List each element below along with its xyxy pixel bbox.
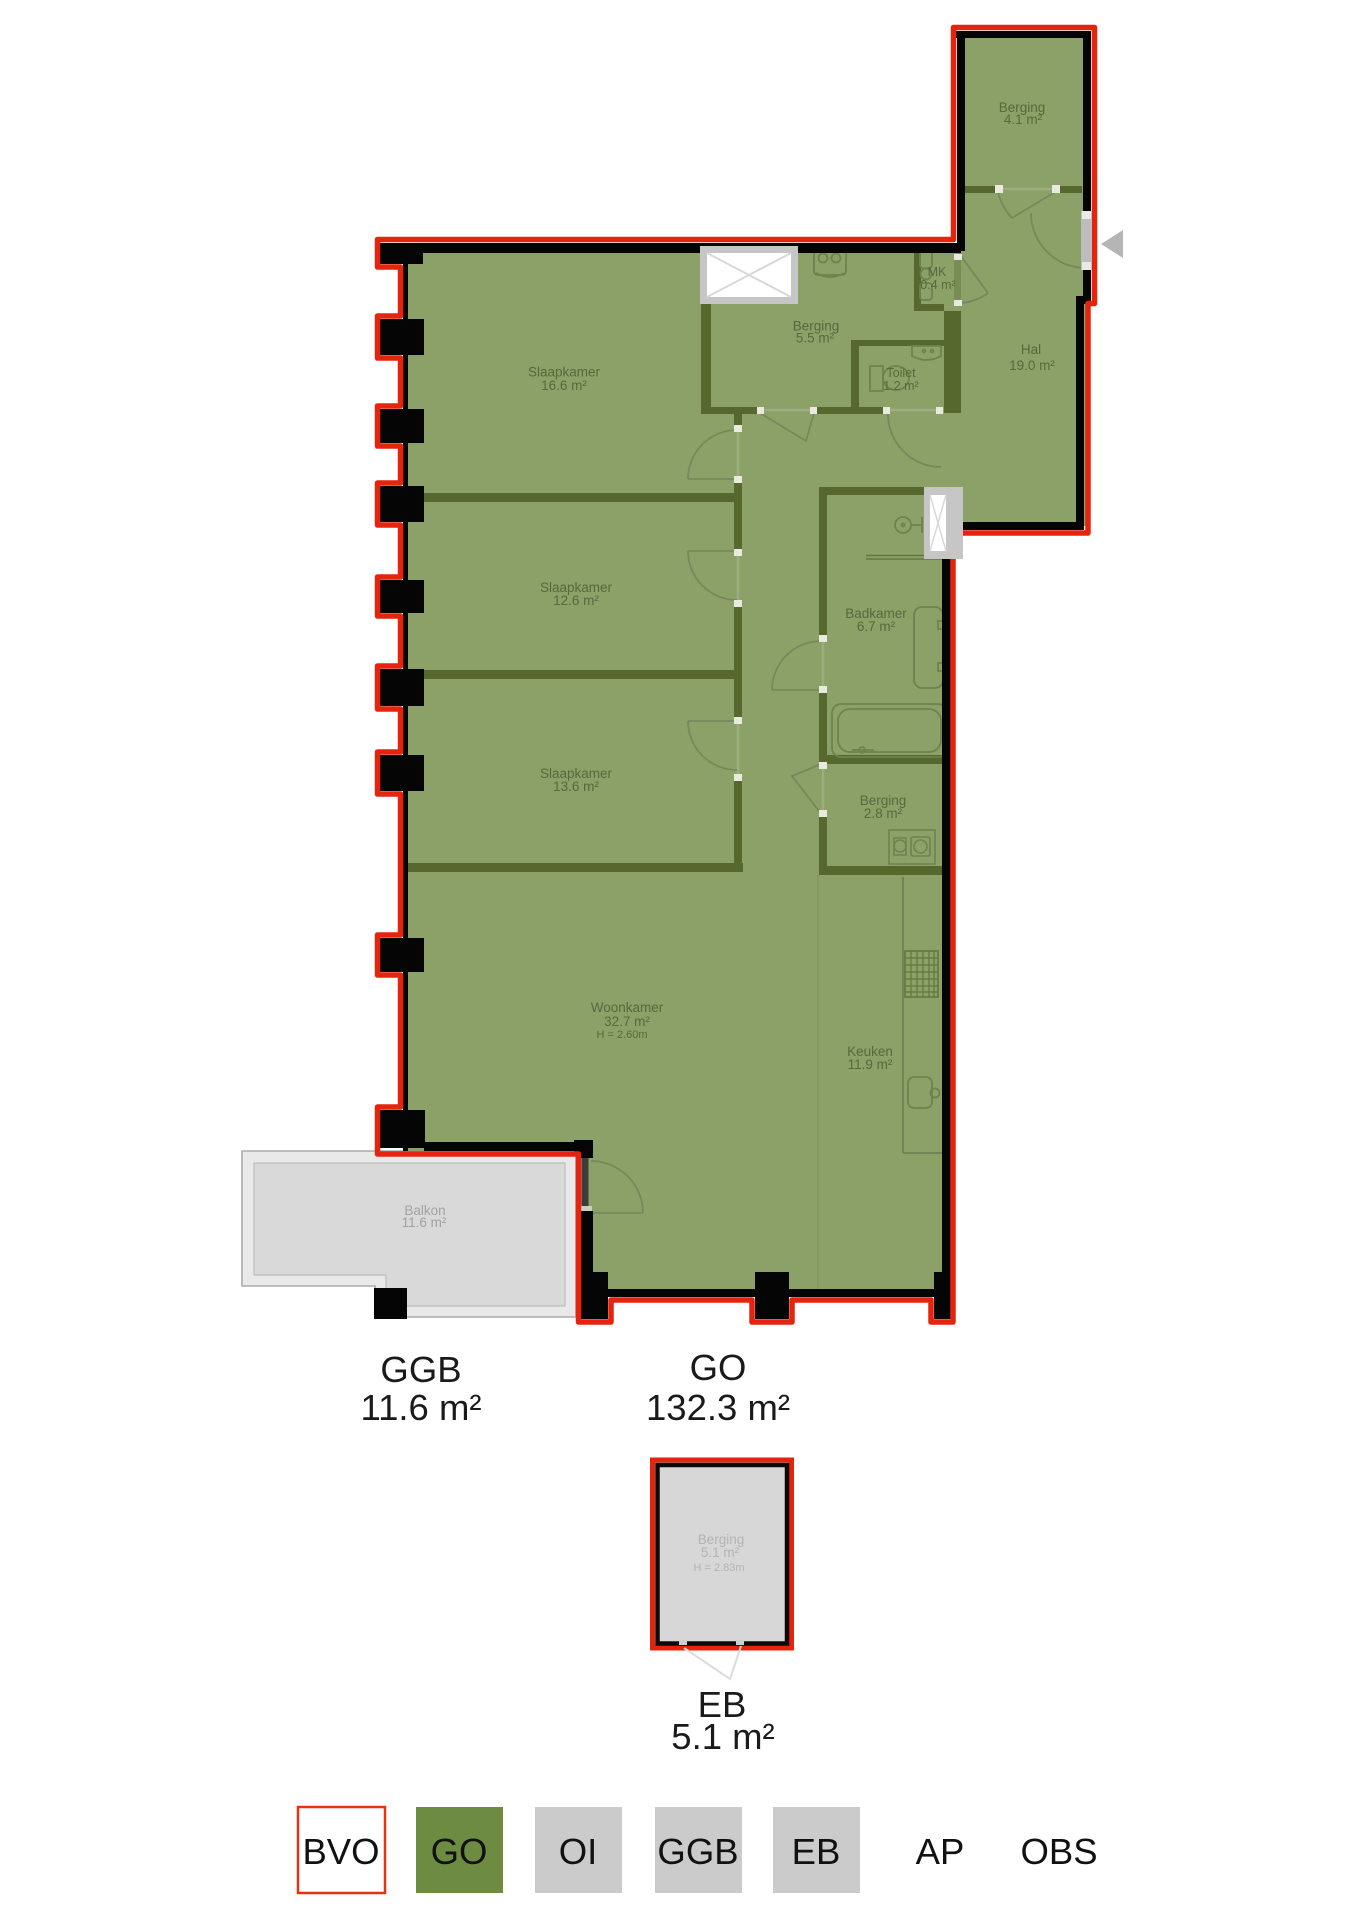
svg-text:EB: EB	[792, 1831, 841, 1872]
svg-text:GO: GO	[431, 1831, 488, 1872]
svg-text:11.9 m²: 11.9 m²	[848, 1057, 893, 1072]
svg-text:GO: GO	[690, 1347, 747, 1388]
svg-text:1.2 m²: 1.2 m²	[883, 379, 918, 393]
svg-text:4.1 m²: 4.1 m²	[1004, 112, 1043, 127]
svg-text:5.1 m²: 5.1 m²	[701, 1545, 740, 1560]
svg-text:BVO: BVO	[302, 1831, 379, 1872]
svg-text:6.7 m²: 6.7 m²	[857, 619, 896, 634]
svg-text:0.4 m²: 0.4 m²	[920, 278, 955, 292]
svg-text:AP: AP	[916, 1831, 965, 1872]
svg-text:11.6 m²: 11.6 m²	[402, 1215, 447, 1230]
svg-text:GGB: GGB	[657, 1831, 738, 1872]
svg-text:Hal: Hal	[1021, 342, 1041, 357]
svg-text:12.6 m²: 12.6 m²	[553, 593, 599, 608]
svg-text:GGB: GGB	[380, 1349, 461, 1390]
svg-text:MK: MK	[928, 265, 947, 279]
svg-text:11.6 m²: 11.6 m²	[360, 1387, 481, 1428]
svg-text:OI: OI	[559, 1831, 598, 1872]
svg-text:32.7 m²: 32.7 m²	[604, 1014, 650, 1029]
svg-text:19.0 m²: 19.0 m²	[1009, 358, 1055, 373]
svg-text:5.5 m²: 5.5 m²	[796, 331, 835, 346]
svg-text:H = 2.83m: H = 2.83m	[693, 1562, 744, 1574]
svg-text:5.1 m²: 5.1 m²	[671, 1716, 774, 1757]
svg-text:Woonkamer: Woonkamer	[591, 1000, 664, 1015]
svg-text:Toilet: Toilet	[886, 366, 916, 380]
svg-text:16.6 m²: 16.6 m²	[541, 378, 587, 393]
svg-text:13.6 m²: 13.6 m²	[553, 779, 599, 794]
svg-text:2.8 m²: 2.8 m²	[864, 806, 903, 821]
svg-text:OBS: OBS	[1020, 1831, 1097, 1872]
svg-text:H = 2.60m: H = 2.60m	[596, 1029, 647, 1041]
svg-text:132.3 m²: 132.3 m²	[646, 1387, 790, 1428]
